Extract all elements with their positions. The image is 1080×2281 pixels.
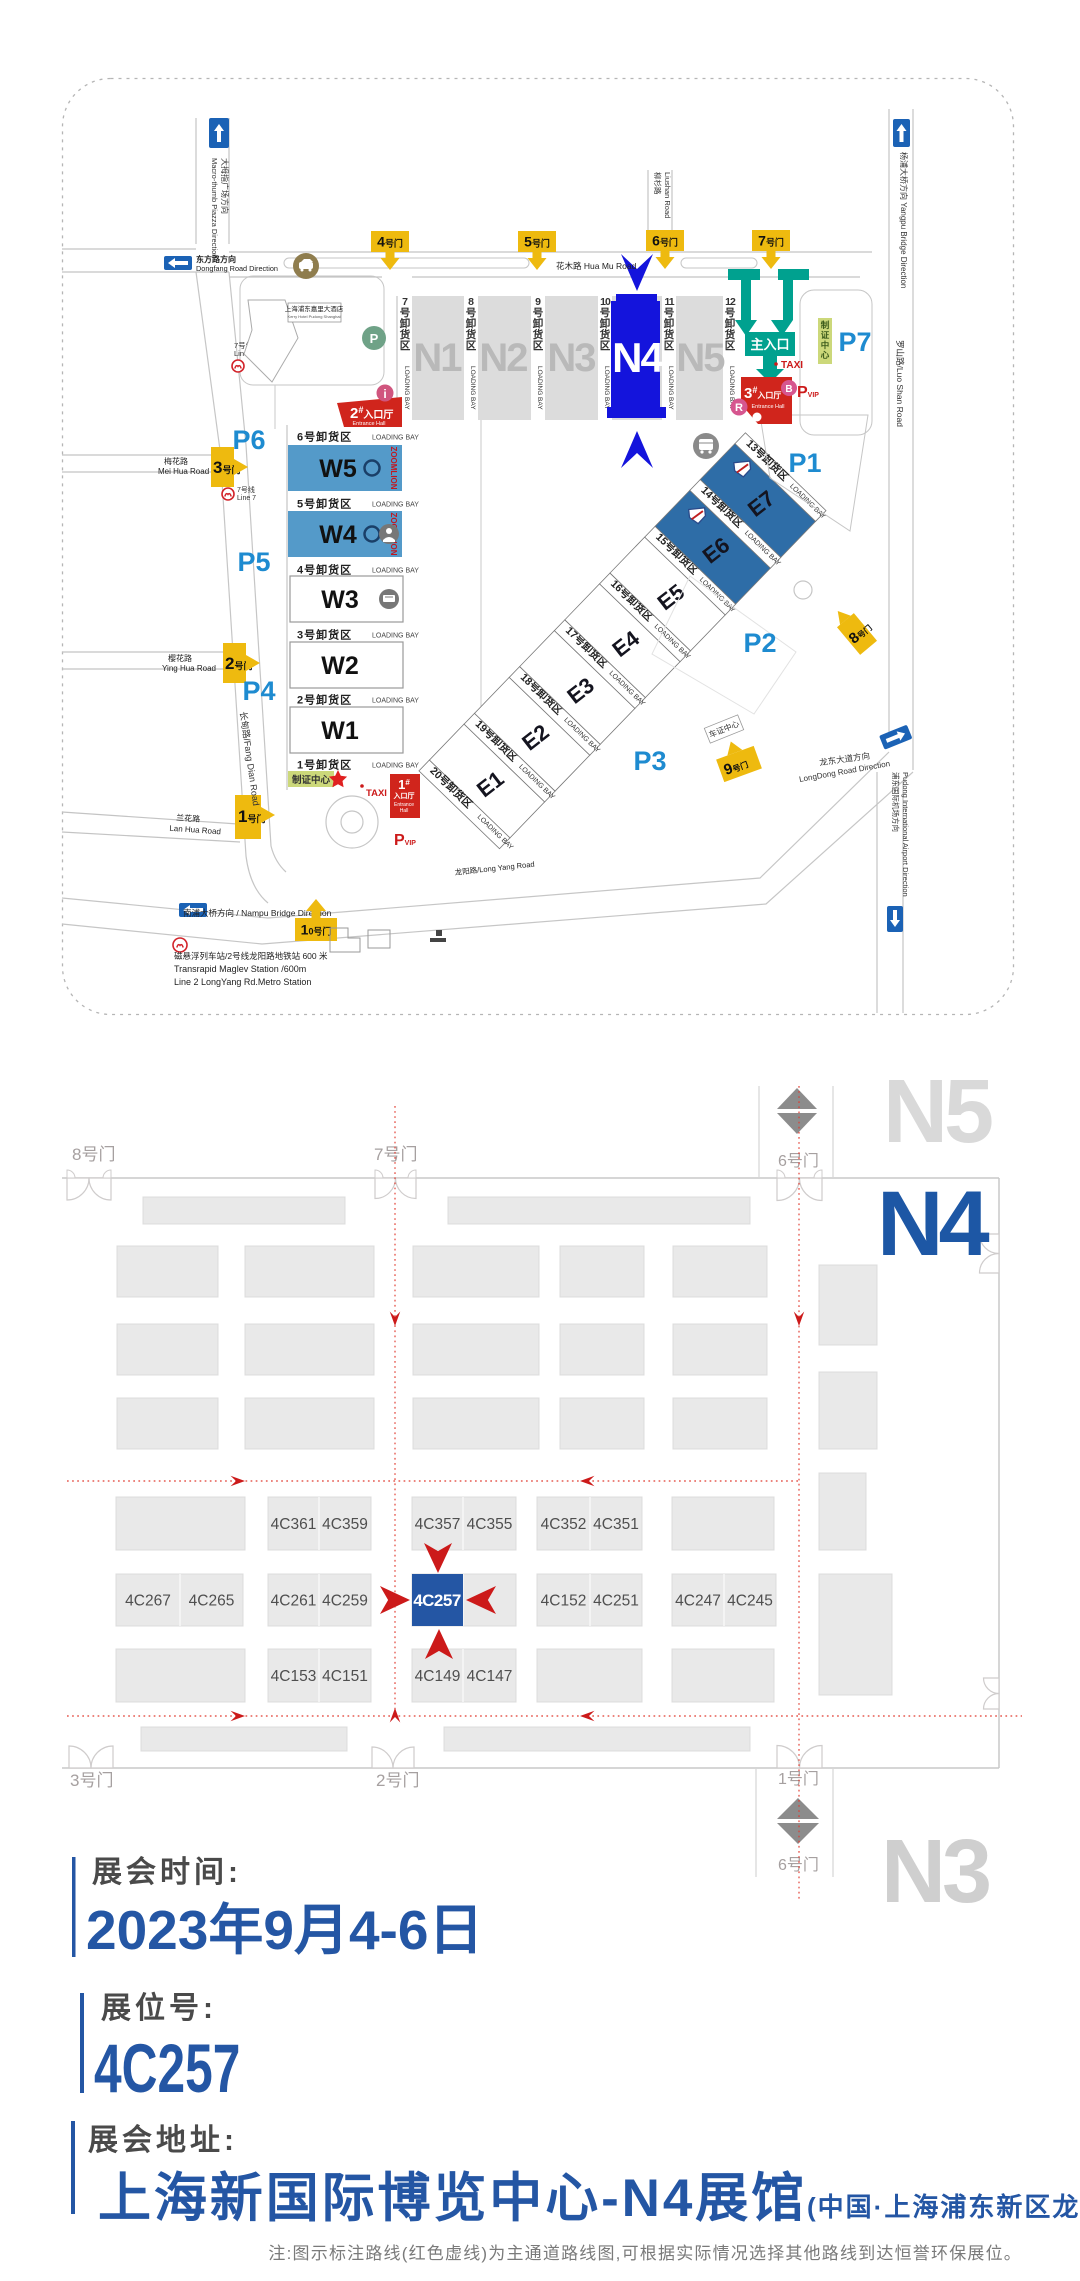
svg-text:制证中心: 制证中心 (292, 774, 331, 786)
svg-text:LOADING BAY: LOADING BAY (372, 763, 419, 770)
svg-text:Pudong International Airport D: Pudong International Airport Direction (901, 772, 910, 897)
svg-text:N5: N5 (676, 336, 725, 380)
svg-text:Line 7: Line 7 (237, 495, 256, 502)
svg-text:2号门: 2号门 (376, 1771, 419, 1790)
svg-text:4C361: 4C361 (271, 1516, 317, 1533)
svg-text:大拇指广场方向: 大拇指广场方向 (220, 158, 230, 214)
svg-text:Entrance Hall: Entrance Hall (751, 404, 784, 410)
svg-text:B: B (785, 384, 792, 395)
svg-text:4C259: 4C259 (322, 1593, 368, 1610)
svg-text:N3: N3 (881, 1822, 989, 1922)
svg-text:N4: N4 (612, 334, 664, 381)
svg-text:樱花路: 樱花路 (168, 653, 192, 663)
svg-text:2023年9月4-6日: 2023年9月4-6日 (86, 1899, 483, 1961)
svg-text:展位号:: 展位号: (101, 1991, 217, 2025)
svg-text:展会地址:: 展会地址: (88, 2124, 238, 2157)
svg-text:展会时间:: 展会时间: (92, 1856, 242, 1889)
svg-text:Hall: Hall (400, 808, 409, 814)
svg-text:Liushan Road: Liushan Road (663, 172, 672, 218)
svg-text:LOADING BAY: LOADING BAY (372, 435, 419, 442)
svg-text:4C245: 4C245 (727, 1593, 773, 1610)
svg-text:3号门: 3号门 (70, 1771, 113, 1790)
svg-text:LOADING BAY: LOADING BAY (372, 568, 419, 575)
svg-text:P: P (370, 331, 379, 346)
svg-text:柳杉路: 柳杉路 (653, 172, 663, 195)
svg-text:W5: W5 (319, 455, 357, 483)
svg-text:6号卸货区: 6号卸货区 (297, 430, 352, 444)
svg-text:N3: N3 (547, 336, 595, 380)
svg-text:4C147: 4C147 (467, 1668, 513, 1685)
svg-text:4C251: 4C251 (593, 1593, 639, 1610)
svg-text:5号卸货区: 5号卸货区 (297, 497, 352, 511)
svg-text:W2: W2 (321, 652, 359, 680)
svg-text:Kerry Hotel Pudong Shanghai: Kerry Hotel Pudong Shanghai (288, 314, 341, 319)
svg-text:4C257: 4C257 (94, 2030, 240, 2107)
svg-text:P1: P1 (788, 448, 821, 478)
svg-text:N1: N1 (413, 336, 462, 380)
svg-text:主入口: 主入口 (750, 337, 789, 352)
svg-text:LOADING BAY: LOADING BAY (372, 633, 419, 640)
svg-text:11号卸货区: 11号卸货区 (663, 296, 675, 352)
svg-text:ZOOMLION: ZOOMLION (389, 446, 398, 489)
svg-text:TAXI: TAXI (366, 788, 387, 799)
svg-text:制证中心: 制证中心 (821, 320, 830, 360)
svg-text:4C355: 4C355 (467, 1516, 513, 1533)
svg-text:4C153: 4C153 (271, 1668, 317, 1685)
svg-text:Entrance Hall: Entrance Hall (352, 421, 385, 427)
svg-text:LOADING BAY: LOADING BAY (403, 366, 410, 410)
svg-text:12号卸货区: 12号卸货区 (724, 296, 736, 352)
svg-text:6号门: 6号门 (778, 1152, 819, 1170)
svg-text:P3: P3 (633, 746, 666, 776)
svg-text:N5: N5 (883, 1062, 992, 1162)
svg-text:4C359: 4C359 (322, 1516, 368, 1533)
svg-text:4C149: 4C149 (415, 1668, 461, 1685)
svg-text:Ying Hua Road: Ying Hua Road (162, 664, 216, 673)
svg-text:LOADING BAY: LOADING BAY (536, 366, 543, 410)
svg-text:4C247: 4C247 (675, 1593, 721, 1610)
svg-text:10号卸货区: 10号卸货区 (599, 296, 611, 352)
svg-text:注:图示标注路线(红色虚线)为主通道路线图,可根据实际情况选: 注:图示标注路线(红色虚线)为主通道路线图,可根据实际情况选择其他路线到达恒誉环… (268, 2244, 1022, 2263)
svg-text:1号卸货区: 1号卸货区 (297, 758, 352, 772)
svg-text:4C352: 4C352 (541, 1516, 587, 1533)
svg-text:浦东国际机场方向: 浦东国际机场方向 (891, 772, 901, 832)
svg-text:i: i (383, 387, 386, 401)
svg-text:Line 2 LongYang Rd.Metro Stati: Line 2 LongYang Rd.Metro Station (174, 977, 311, 987)
svg-text:上海浦东嘉里大酒店: 上海浦东嘉里大酒店 (285, 304, 344, 313)
svg-text:8号门: 8号门 (72, 1145, 115, 1164)
svg-text:杨浦大桥方向 Yangpu Bridge Direction: 杨浦大桥方向 Yangpu Bridge Direction (899, 152, 909, 288)
svg-text:TAXI: TAXI (781, 360, 803, 371)
svg-text:P2: P2 (743, 628, 776, 658)
svg-text:3号卸货区: 3号卸货区 (297, 628, 352, 642)
svg-text:R: R (735, 402, 743, 414)
svg-text:7号线: 7号线 (237, 485, 255, 494)
svg-text:P5: P5 (237, 547, 270, 577)
svg-text:N2: N2 (479, 336, 527, 380)
svg-text:LOADING BAY: LOADING BAY (469, 366, 476, 410)
svg-text:4C152: 4C152 (541, 1593, 587, 1610)
svg-text:W3: W3 (321, 586, 359, 614)
svg-text:N4: N4 (877, 1173, 989, 1275)
svg-text:花木路 Hua Mu Road: 花木路 Hua Mu Road (556, 261, 637, 271)
svg-text:4C257: 4C257 (413, 1591, 461, 1610)
svg-text:4C151: 4C151 (322, 1668, 368, 1685)
svg-text:7号门: 7号门 (374, 1145, 417, 1164)
svg-text:磁悬浮列车站/2号线龙阳路地铁站 600 米: 磁悬浮列车站/2号线龙阳路地铁站 600 米 (174, 951, 328, 961)
svg-text:罗山路/Luo Shan Road: 罗山路/Luo Shan Road (895, 340, 905, 427)
svg-text:W4: W4 (319, 521, 357, 549)
svg-text:P4: P4 (242, 676, 275, 706)
svg-text:P6: P6 (232, 425, 265, 455)
svg-text:Transrapid Maglev Station /60: Transrapid Maglev Station /600m (174, 964, 306, 974)
svg-text:兰花路: 兰花路 (176, 812, 201, 824)
svg-text:LOADING BAY: LOADING BAY (372, 698, 419, 705)
svg-text:梅花路: 梅花路 (164, 456, 188, 466)
svg-text:东方路方向: 东方路方向 (196, 254, 236, 264)
svg-text:4C261: 4C261 (271, 1593, 317, 1610)
svg-text:P7: P7 (838, 327, 871, 357)
svg-text:LOADING BAY: LOADING BAY (667, 366, 674, 410)
svg-text:W1: W1 (321, 717, 359, 745)
svg-text:2号卸货区: 2号卸货区 (297, 693, 352, 707)
svg-text:Mei Hua Road: Mei Hua Road (158, 467, 209, 476)
svg-text:Macro-thumb Piazza Direction: Macro-thumb Piazza Direction (210, 158, 219, 258)
svg-text:LOADING BAY: LOADING BAY (603, 366, 610, 410)
svg-text:4C357: 4C357 (415, 1516, 461, 1533)
svg-text:入口厅: 入口厅 (393, 792, 415, 800)
svg-text:6号门: 6号门 (778, 1856, 819, 1874)
svg-text:4C267: 4C267 (125, 1593, 171, 1610)
svg-text:4号卸货区: 4号卸货区 (297, 563, 352, 577)
svg-text:4C351: 4C351 (593, 1516, 639, 1533)
svg-text:LOADING BAY: LOADING BAY (372, 502, 419, 509)
svg-text:Dongfang Road Direction: Dongfang Road Direction (196, 264, 278, 273)
svg-text:4C265: 4C265 (189, 1593, 235, 1610)
